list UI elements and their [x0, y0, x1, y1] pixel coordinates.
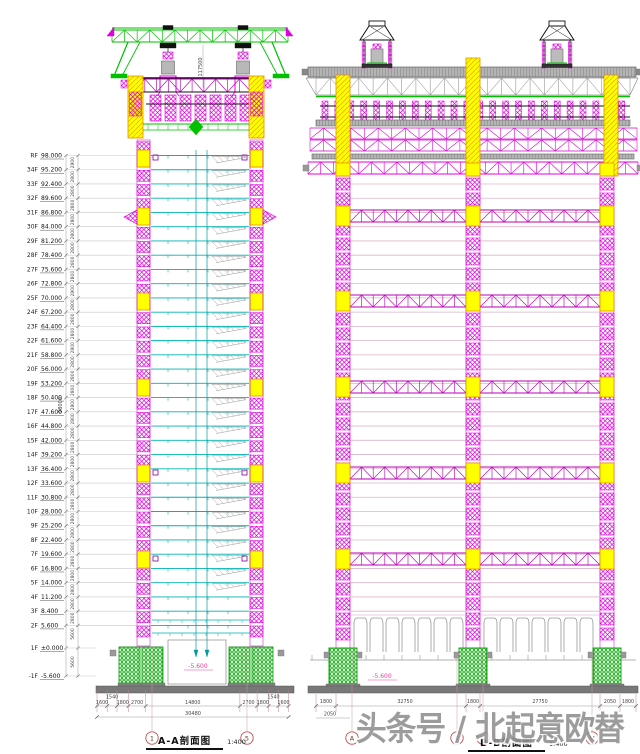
left-section-scale: 1:400: [227, 738, 246, 746]
svg-text:33.600: 33.600: [41, 480, 62, 487]
svg-text:RF: RF: [30, 153, 38, 160]
svg-text:2800: 2800: [70, 541, 76, 553]
svg-text:92.400: 92.400: [41, 181, 62, 188]
svg-text:2800: 2800: [70, 157, 76, 169]
svg-text:16F: 16F: [27, 423, 39, 430]
svg-text:84.000: 84.000: [41, 224, 62, 231]
svg-text:2800: 2800: [70, 413, 76, 425]
section-drawing-svg: RF98.00034F95.20033F92.40032F89.60031F86…: [0, 0, 640, 754]
svg-text:2700: 2700: [131, 700, 143, 706]
watermark: 头条号 / 北起意欧替: [356, 702, 624, 750]
svg-text:6F: 6F: [31, 565, 39, 572]
svg-text:2800: 2800: [70, 356, 76, 368]
svg-text:39.200: 39.200: [41, 452, 62, 459]
svg-text:12F: 12F: [27, 480, 39, 487]
svg-text:72.800: 72.800: [41, 281, 62, 288]
svg-text:2800: 2800: [70, 498, 76, 510]
svg-text:11.200: 11.200: [41, 594, 62, 601]
svg-text:95.200: 95.200: [41, 167, 62, 174]
svg-text:23F: 23F: [27, 323, 39, 330]
svg-text:2800: 2800: [70, 185, 76, 197]
svg-text:22F: 22F: [27, 338, 39, 345]
svg-text:19F: 19F: [27, 380, 39, 387]
svg-text:15F: 15F: [27, 437, 39, 444]
svg-text:26F: 26F: [27, 281, 39, 288]
svg-text:24F: 24F: [27, 309, 39, 316]
svg-text:2800: 2800: [70, 385, 76, 397]
svg-text:98.000: 98.000: [41, 153, 62, 160]
svg-text:2800: 2800: [70, 271, 76, 283]
svg-text:28F: 28F: [27, 252, 39, 259]
svg-text:-5.600: -5.600: [41, 673, 61, 680]
svg-text:±0.000: ±0.000: [41, 645, 63, 652]
svg-text:1540: 1540: [267, 695, 279, 701]
svg-text:61.600: 61.600: [41, 338, 62, 345]
svg-text:2800: 2800: [70, 527, 76, 539]
svg-text:-5.600: -5.600: [372, 673, 392, 680]
svg-text:89.600: 89.600: [41, 195, 62, 202]
svg-text:25F: 25F: [27, 295, 39, 302]
svg-text:14.000: 14.000: [41, 580, 62, 587]
svg-text:5.600: 5.600: [41, 622, 58, 629]
svg-text:2800: 2800: [70, 256, 76, 268]
svg-text:2800: 2800: [70, 598, 76, 610]
svg-text:36.400: 36.400: [41, 466, 62, 473]
svg-text:2050: 2050: [324, 712, 336, 718]
svg-text:30480: 30480: [185, 711, 201, 717]
svg-text:27F: 27F: [27, 266, 39, 273]
svg-text:2800: 2800: [70, 399, 76, 411]
svg-text:7F: 7F: [31, 551, 39, 558]
svg-text:70.000: 70.000: [41, 295, 62, 302]
svg-text:11F: 11F: [27, 494, 39, 501]
svg-text:17F: 17F: [27, 409, 39, 416]
svg-text:-1F: -1F: [29, 673, 39, 680]
svg-text:2700: 2700: [242, 700, 254, 706]
svg-text:2800: 2800: [70, 612, 76, 624]
svg-text:30.800: 30.800: [41, 494, 62, 501]
svg-text:-5.600: -5.600: [188, 663, 208, 670]
svg-text:86.800: 86.800: [41, 209, 62, 216]
svg-text:67.200: 67.200: [41, 309, 62, 316]
svg-text:2800: 2800: [70, 313, 76, 325]
svg-text:16.800: 16.800: [41, 565, 62, 572]
svg-text:34F: 34F: [27, 167, 39, 174]
svg-text:5600: 5600: [70, 628, 76, 640]
svg-text:10F: 10F: [27, 509, 39, 516]
svg-text:1800: 1800: [117, 700, 129, 706]
svg-text:78.400: 78.400: [41, 252, 62, 259]
svg-text:13F: 13F: [27, 466, 39, 473]
svg-text:1800: 1800: [320, 699, 332, 705]
svg-text:44.800: 44.800: [41, 423, 62, 430]
svg-text:2800: 2800: [70, 470, 76, 482]
svg-text:9F: 9F: [31, 523, 39, 530]
svg-text:22.400: 22.400: [41, 537, 62, 544]
svg-text:64.400: 64.400: [41, 323, 62, 330]
svg-text:75.600: 75.600: [41, 266, 62, 273]
svg-text:2800: 2800: [70, 171, 76, 183]
left-section-title: A-A剖面图: [146, 736, 223, 750]
drawing-canvas: RF98.00034F95.20033F92.40032F89.60031F86…: [0, 0, 640, 754]
svg-text:19.600: 19.600: [41, 551, 62, 558]
svg-text:2800: 2800: [70, 484, 76, 496]
svg-text:1540: 1540: [106, 695, 118, 701]
svg-text:2800: 2800: [70, 427, 76, 439]
svg-text:14F: 14F: [27, 452, 39, 459]
svg-text:3F: 3F: [31, 608, 39, 615]
svg-text:8F: 8F: [31, 537, 39, 544]
svg-text:1F: 1F: [31, 645, 39, 652]
svg-text:20F: 20F: [27, 366, 39, 373]
svg-text:2800: 2800: [70, 584, 76, 596]
svg-text:28.000: 28.000: [41, 509, 62, 516]
svg-text:1600: 1600: [277, 700, 289, 706]
svg-text:2800: 2800: [70, 242, 76, 254]
svg-text:2800: 2800: [70, 370, 76, 382]
svg-text:2800: 2800: [70, 442, 76, 454]
svg-text:1600: 1600: [96, 700, 108, 706]
svg-text:2800: 2800: [70, 513, 76, 525]
svg-text:56.000: 56.000: [41, 366, 62, 373]
left-title-block: A-A剖面图1:400: [146, 729, 246, 748]
svg-text:A: A: [350, 735, 355, 743]
svg-text:29F: 29F: [27, 238, 39, 245]
svg-text:5600: 5600: [70, 656, 76, 668]
svg-text:2800: 2800: [70, 456, 76, 468]
svg-text:2800: 2800: [70, 214, 76, 226]
svg-text:32F: 32F: [27, 195, 39, 202]
svg-text:2800: 2800: [70, 228, 76, 240]
svg-text:2800: 2800: [70, 199, 76, 211]
svg-text:21F: 21F: [27, 352, 39, 359]
svg-text:30F: 30F: [27, 224, 39, 231]
svg-text:2800: 2800: [70, 285, 76, 297]
svg-text:2800: 2800: [70, 555, 76, 567]
svg-text:18F: 18F: [27, 395, 39, 402]
svg-text:2800: 2800: [70, 299, 76, 311]
svg-text:81.200: 81.200: [41, 238, 62, 245]
svg-text:53.200: 53.200: [41, 380, 62, 387]
svg-text:33F: 33F: [27, 181, 39, 188]
svg-text:58.800: 58.800: [41, 352, 62, 359]
svg-text:4F: 4F: [31, 594, 39, 601]
svg-text:8.400: 8.400: [41, 608, 58, 615]
svg-text:42.000: 42.000: [41, 437, 62, 444]
svg-text:14800: 14800: [185, 700, 200, 706]
svg-text:2800: 2800: [70, 328, 76, 340]
svg-text:31F: 31F: [27, 209, 39, 216]
svg-text:2F: 2F: [31, 622, 39, 629]
svg-text:25.200: 25.200: [41, 523, 62, 530]
svg-text:2800: 2800: [70, 342, 76, 354]
svg-text:5F: 5F: [31, 580, 39, 587]
svg-text:1800: 1800: [257, 700, 269, 706]
svg-text:2800: 2800: [70, 570, 76, 582]
svg-text:98000: 98000: [58, 397, 64, 413]
